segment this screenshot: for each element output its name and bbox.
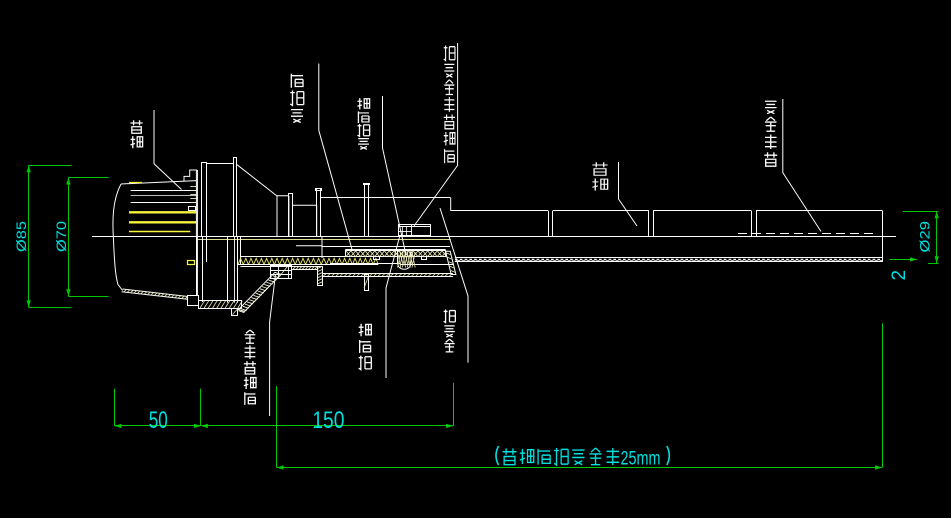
svg-text:150: 150 <box>312 407 344 434</box>
svg-text:Ø29: Ø29 <box>916 221 932 253</box>
svg-text:50: 50 <box>149 407 168 434</box>
svg-text:Ø70: Ø70 <box>53 221 69 252</box>
svg-text:25mm: 25mm <box>621 449 661 470</box>
svg-text:2: 2 <box>889 270 910 281</box>
svg-text:Ø85: Ø85 <box>13 221 29 252</box>
